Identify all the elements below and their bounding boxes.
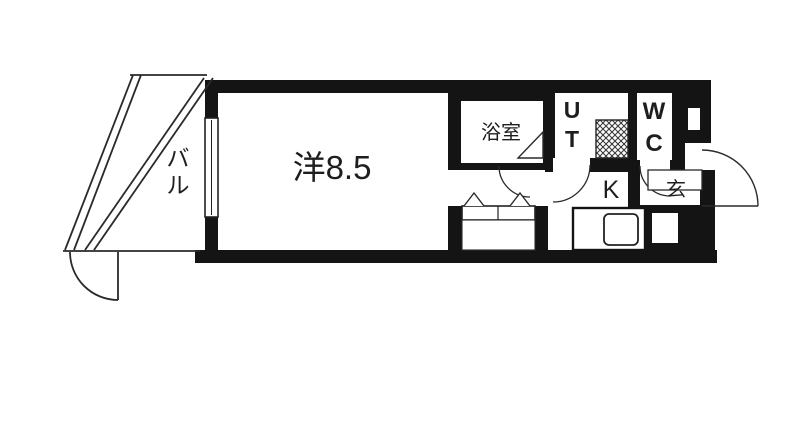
kitchen-sink-icon bbox=[604, 214, 638, 245]
balcony-label-char2: ル bbox=[167, 172, 190, 198]
main-room-label: 洋8.5 bbox=[293, 149, 372, 186]
shoe-cabinet bbox=[652, 213, 678, 243]
wall-bottom bbox=[195, 250, 717, 263]
bath-label: 浴室 bbox=[481, 121, 521, 144]
wall-hall-entrance bbox=[628, 172, 640, 208]
wall-top bbox=[205, 80, 700, 93]
entrance-label: 玄 bbox=[666, 178, 686, 201]
floor-plan-svg: バ ル 洋8.5 浴室 U T W C K 玄 bbox=[0, 0, 800, 423]
utility-door-gap bbox=[553, 158, 590, 172]
closet-pillar-right bbox=[535, 206, 548, 250]
utility-label-char1: U bbox=[564, 97, 581, 123]
closet-pillar-left bbox=[448, 206, 462, 250]
closet-interior bbox=[462, 220, 535, 250]
balcony-label-char1: バ bbox=[167, 145, 190, 171]
wc-label-char1: W bbox=[643, 98, 666, 125]
kitchen-label: K bbox=[603, 176, 620, 204]
wall-left-upper bbox=[205, 93, 218, 120]
pipe-space bbox=[688, 108, 700, 130]
washer-pan-icon bbox=[596, 120, 628, 158]
wall-left-lower bbox=[205, 215, 218, 250]
utility-label-char2: T bbox=[565, 126, 579, 152]
floor-plan: バ ル 洋8.5 浴室 U T W C K 玄 bbox=[0, 0, 800, 423]
wc-label-char2: C bbox=[645, 130, 662, 157]
